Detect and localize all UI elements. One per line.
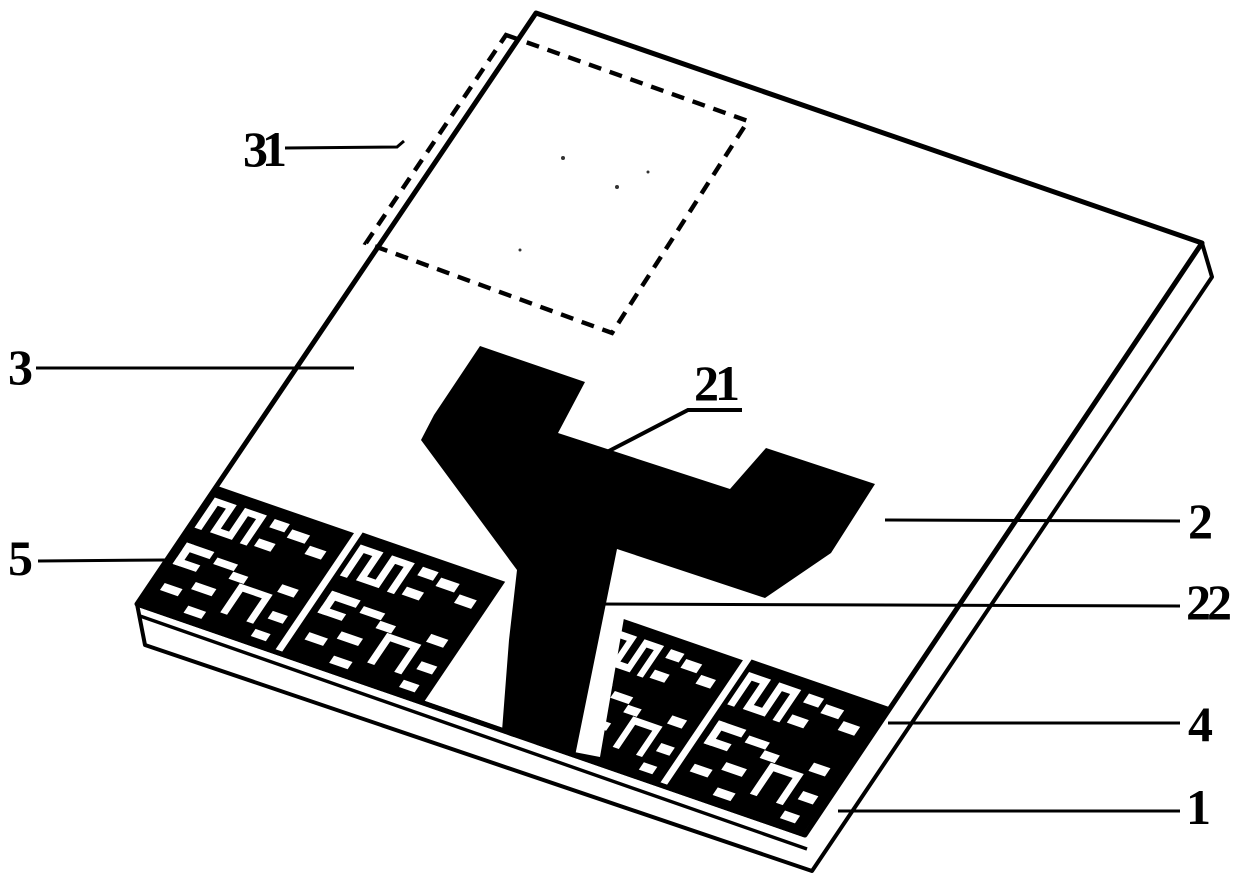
svg-text:5: 5: [8, 530, 33, 586]
svg-text:4: 4: [1188, 696, 1213, 752]
svg-text:2: 2: [1188, 493, 1213, 549]
svg-text:31: 31: [243, 121, 287, 177]
svg-text:1: 1: [1186, 779, 1211, 835]
svg-text:21: 21: [694, 355, 740, 411]
svg-text:22: 22: [1186, 574, 1232, 630]
svg-text:3: 3: [8, 339, 33, 395]
